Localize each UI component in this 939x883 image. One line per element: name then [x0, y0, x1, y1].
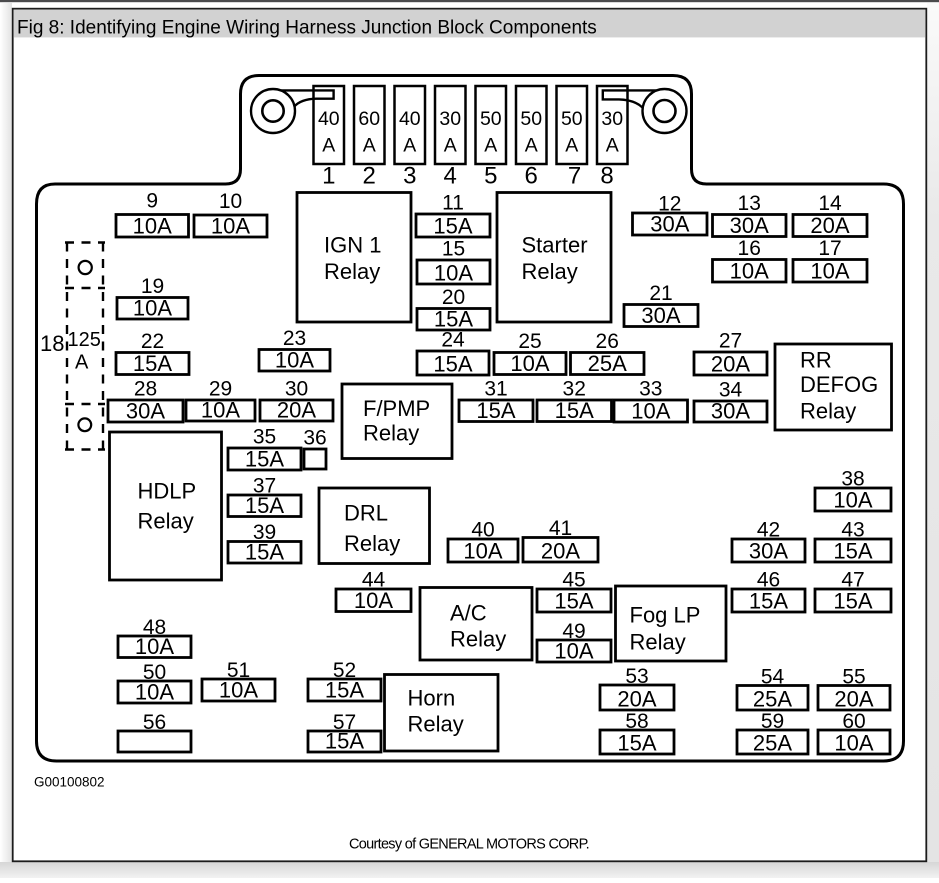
svg-text:47: 47	[841, 569, 864, 592]
svg-text:52: 52	[333, 659, 356, 682]
svg-text:60: 60	[842, 710, 865, 733]
svg-text:10A: 10A	[354, 588, 393, 613]
svg-text:10A: 10A	[133, 214, 172, 239]
svg-text:A: A	[403, 135, 416, 157]
svg-text:30A: 30A	[730, 213, 769, 238]
svg-text:15A: 15A	[554, 589, 593, 614]
svg-text:39: 39	[253, 521, 276, 544]
svg-text:Fog LP: Fog LP	[630, 603, 701, 628]
svg-text:15A: 15A	[555, 398, 594, 423]
svg-text:A: A	[75, 352, 89, 374]
svg-text:30A: 30A	[641, 303, 680, 328]
svg-text:37: 37	[253, 475, 276, 498]
svg-text:45: 45	[562, 569, 585, 592]
svg-text:15A: 15A	[245, 447, 284, 472]
svg-text:Horn: Horn	[408, 686, 456, 711]
svg-text:58: 58	[625, 710, 648, 733]
svg-text:15A: 15A	[749, 589, 788, 614]
svg-text:30: 30	[439, 108, 461, 130]
svg-text:Starter: Starter	[522, 233, 588, 258]
svg-text:A/C: A/C	[450, 601, 487, 626]
svg-text:Relay: Relay	[522, 259, 578, 284]
svg-text:Relay: Relay	[344, 531, 400, 556]
svg-text:10A: 10A	[510, 351, 549, 376]
svg-text:29: 29	[209, 378, 232, 401]
svg-text:Courtesy of GENERAL MOTORS COR: Courtesy of GENERAL MOTORS CORP.	[349, 837, 589, 853]
svg-text:57: 57	[333, 711, 356, 734]
svg-text:50: 50	[143, 661, 166, 684]
svg-text:8: 8	[600, 163, 613, 190]
svg-text:10A: 10A	[201, 398, 240, 423]
svg-text:5: 5	[484, 163, 497, 190]
svg-text:10: 10	[219, 190, 242, 213]
svg-text:20A: 20A	[541, 539, 580, 564]
svg-text:50: 50	[520, 108, 542, 130]
svg-text:17: 17	[818, 237, 841, 260]
svg-text:10A: 10A	[834, 731, 873, 756]
svg-text:11: 11	[442, 192, 464, 215]
svg-text:15A: 15A	[433, 352, 472, 377]
svg-text:A: A	[363, 135, 376, 157]
svg-text:33: 33	[639, 378, 662, 401]
svg-text:26: 26	[596, 330, 619, 353]
svg-text:20A: 20A	[834, 687, 873, 712]
svg-text:DEFOG: DEFOG	[800, 372, 878, 397]
svg-text:9: 9	[146, 190, 158, 213]
svg-text:53: 53	[625, 665, 648, 688]
svg-text:25A: 25A	[753, 687, 792, 712]
svg-text:A: A	[606, 135, 619, 157]
svg-text:DRL: DRL	[344, 501, 388, 526]
svg-text:48: 48	[143, 616, 166, 639]
svg-text:35: 35	[253, 426, 276, 449]
svg-text:20: 20	[442, 286, 465, 309]
svg-text:41: 41	[549, 517, 572, 540]
svg-text:RR: RR	[800, 348, 832, 373]
svg-text:2: 2	[363, 163, 376, 190]
svg-text:28: 28	[134, 378, 157, 401]
svg-text:15A: 15A	[133, 351, 172, 376]
svg-text:15A: 15A	[433, 214, 472, 239]
svg-text:31: 31	[484, 378, 507, 401]
svg-text:30A: 30A	[749, 539, 788, 564]
svg-text:40: 40	[471, 519, 494, 542]
svg-text:A: A	[484, 135, 497, 157]
svg-text:19: 19	[141, 275, 164, 298]
svg-text:10A: 10A	[133, 296, 172, 321]
svg-text:10A: 10A	[810, 259, 849, 284]
svg-text:32: 32	[563, 378, 586, 401]
svg-text:3: 3	[403, 163, 416, 190]
svg-text:6: 6	[525, 163, 538, 190]
svg-text:30A: 30A	[711, 399, 750, 424]
svg-text:36: 36	[303, 427, 326, 450]
svg-text:20A: 20A	[617, 687, 656, 712]
svg-text:59: 59	[761, 710, 784, 733]
svg-text:Relay: Relay	[630, 630, 686, 655]
svg-text:13: 13	[738, 192, 761, 215]
svg-text:40: 40	[399, 108, 421, 130]
svg-text:A: A	[525, 135, 538, 157]
svg-text:18: 18	[40, 331, 64, 356]
svg-text:51: 51	[227, 659, 250, 682]
svg-text:10A: 10A	[463, 539, 502, 564]
svg-text:50: 50	[480, 108, 502, 130]
svg-text:IGN 1: IGN 1	[324, 233, 381, 258]
svg-text:15A: 15A	[833, 589, 872, 614]
svg-text:10A: 10A	[211, 214, 250, 239]
svg-text:15: 15	[442, 238, 465, 261]
svg-text:20A: 20A	[711, 352, 750, 377]
svg-text:15A: 15A	[476, 398, 515, 423]
svg-text:25: 25	[518, 330, 541, 353]
svg-text:49: 49	[562, 620, 585, 643]
svg-text:25A: 25A	[588, 351, 627, 376]
svg-text:10A: 10A	[275, 348, 314, 373]
svg-text:A: A	[322, 135, 335, 157]
svg-text:27: 27	[719, 330, 742, 353]
svg-text:Relay: Relay	[363, 421, 419, 446]
svg-text:10A: 10A	[833, 488, 872, 513]
svg-text:20A: 20A	[277, 398, 316, 423]
svg-text:A: A	[565, 135, 578, 157]
svg-text:24: 24	[441, 329, 465, 352]
svg-text:50: 50	[561, 108, 583, 130]
svg-text:Relay: Relay	[324, 259, 380, 284]
svg-text:44: 44	[362, 569, 386, 592]
svg-text:4: 4	[444, 163, 457, 190]
svg-text:16: 16	[738, 237, 761, 260]
svg-text:30: 30	[601, 108, 623, 130]
svg-text:55: 55	[842, 666, 865, 689]
svg-text:Relay: Relay	[138, 509, 194, 534]
svg-text:56: 56	[143, 711, 166, 734]
svg-text:21: 21	[649, 282, 672, 305]
svg-text:46: 46	[757, 569, 780, 592]
svg-text:15A: 15A	[833, 539, 872, 564]
svg-text:7: 7	[568, 163, 581, 190]
svg-text:Relay: Relay	[450, 627, 506, 652]
svg-text:30: 30	[285, 378, 308, 401]
svg-text:10A: 10A	[631, 399, 670, 424]
svg-text:Fig 8: Identifying Engine Wiri: Fig 8: Identifying Engine Wiring Harness…	[17, 18, 597, 39]
svg-text:23: 23	[283, 327, 306, 350]
svg-text:40: 40	[318, 108, 340, 130]
svg-text:10A: 10A	[730, 259, 769, 284]
svg-text:125: 125	[68, 329, 101, 351]
svg-text:38: 38	[841, 468, 864, 491]
svg-text:22: 22	[141, 330, 164, 353]
svg-text:42: 42	[757, 519, 780, 542]
svg-text:F/PMP: F/PMP	[363, 396, 430, 421]
svg-text:10A: 10A	[434, 261, 473, 286]
svg-text:14: 14	[818, 192, 842, 215]
svg-text:Relay: Relay	[800, 399, 856, 424]
svg-text:Relay: Relay	[408, 712, 464, 737]
svg-text:HDLP: HDLP	[138, 479, 197, 504]
svg-text:15A: 15A	[617, 731, 656, 756]
svg-text:G00100802: G00100802	[34, 775, 105, 790]
svg-text:A: A	[444, 135, 457, 157]
svg-text:34: 34	[719, 379, 743, 402]
svg-text:12: 12	[658, 193, 681, 216]
svg-text:1: 1	[322, 163, 335, 190]
svg-text:30A: 30A	[126, 399, 165, 424]
svg-text:20A: 20A	[810, 213, 849, 238]
svg-text:60: 60	[358, 108, 380, 130]
svg-text:25A: 25A	[753, 731, 792, 756]
svg-text:43: 43	[841, 519, 864, 542]
svg-text:54: 54	[761, 666, 785, 689]
